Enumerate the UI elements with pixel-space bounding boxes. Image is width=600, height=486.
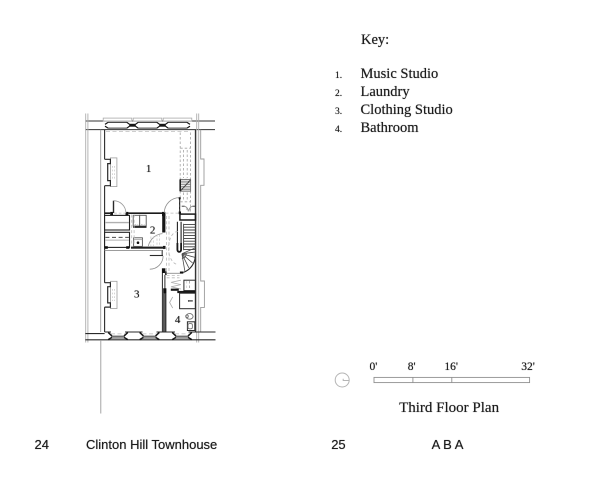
svg-text:1: 1 <box>146 163 152 175</box>
svg-text:2: 2 <box>150 225 156 237</box>
svg-text:3: 3 <box>134 289 140 301</box>
svg-text:4: 4 <box>175 314 181 326</box>
